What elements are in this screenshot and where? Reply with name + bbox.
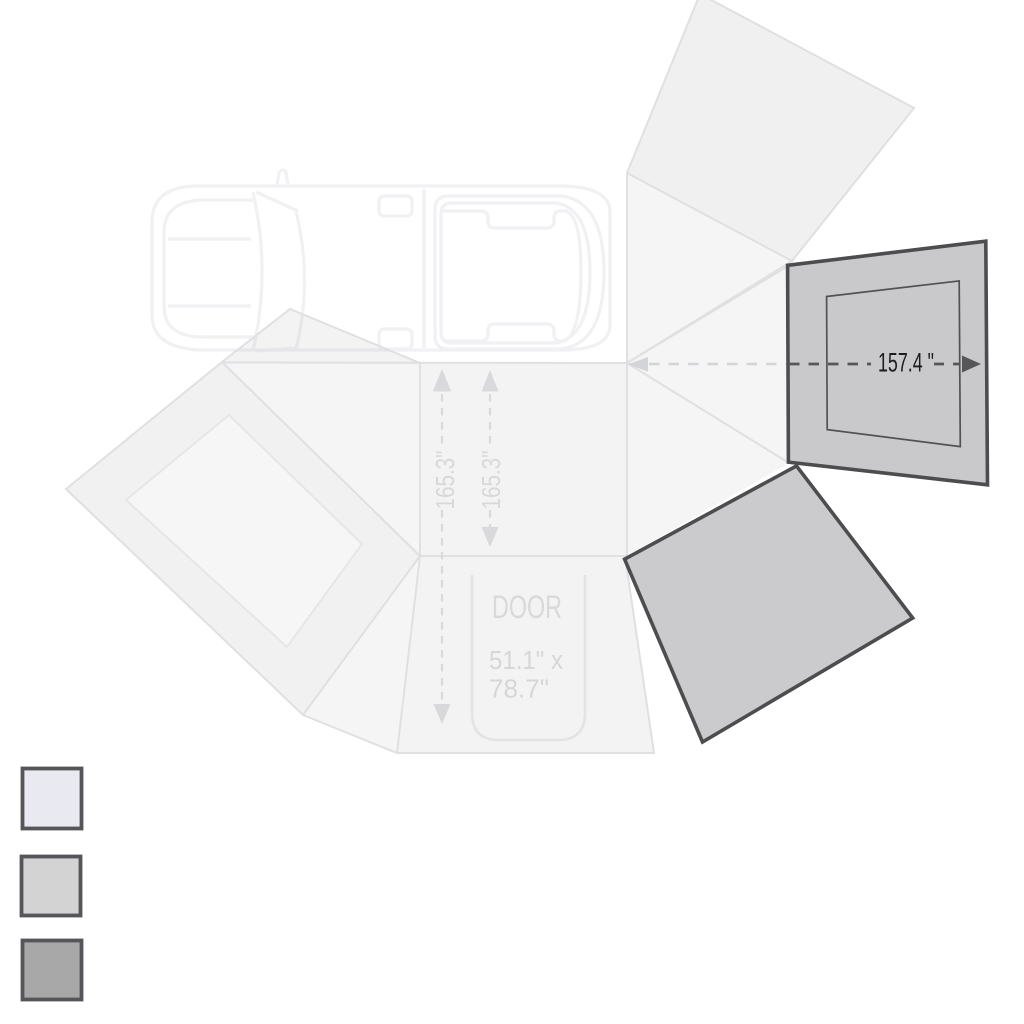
svg-text:165.3": 165.3" bbox=[476, 451, 506, 510]
svg-text:157.4 ": 157.4 " bbox=[878, 348, 934, 378]
svg-text:DOOR: DOOR bbox=[492, 589, 562, 625]
svg-text:78.7": 78.7" bbox=[489, 676, 549, 704]
svg-text:51.1" x: 51.1" x bbox=[489, 647, 563, 675]
svg-text:165.3": 165.3" bbox=[430, 451, 460, 510]
